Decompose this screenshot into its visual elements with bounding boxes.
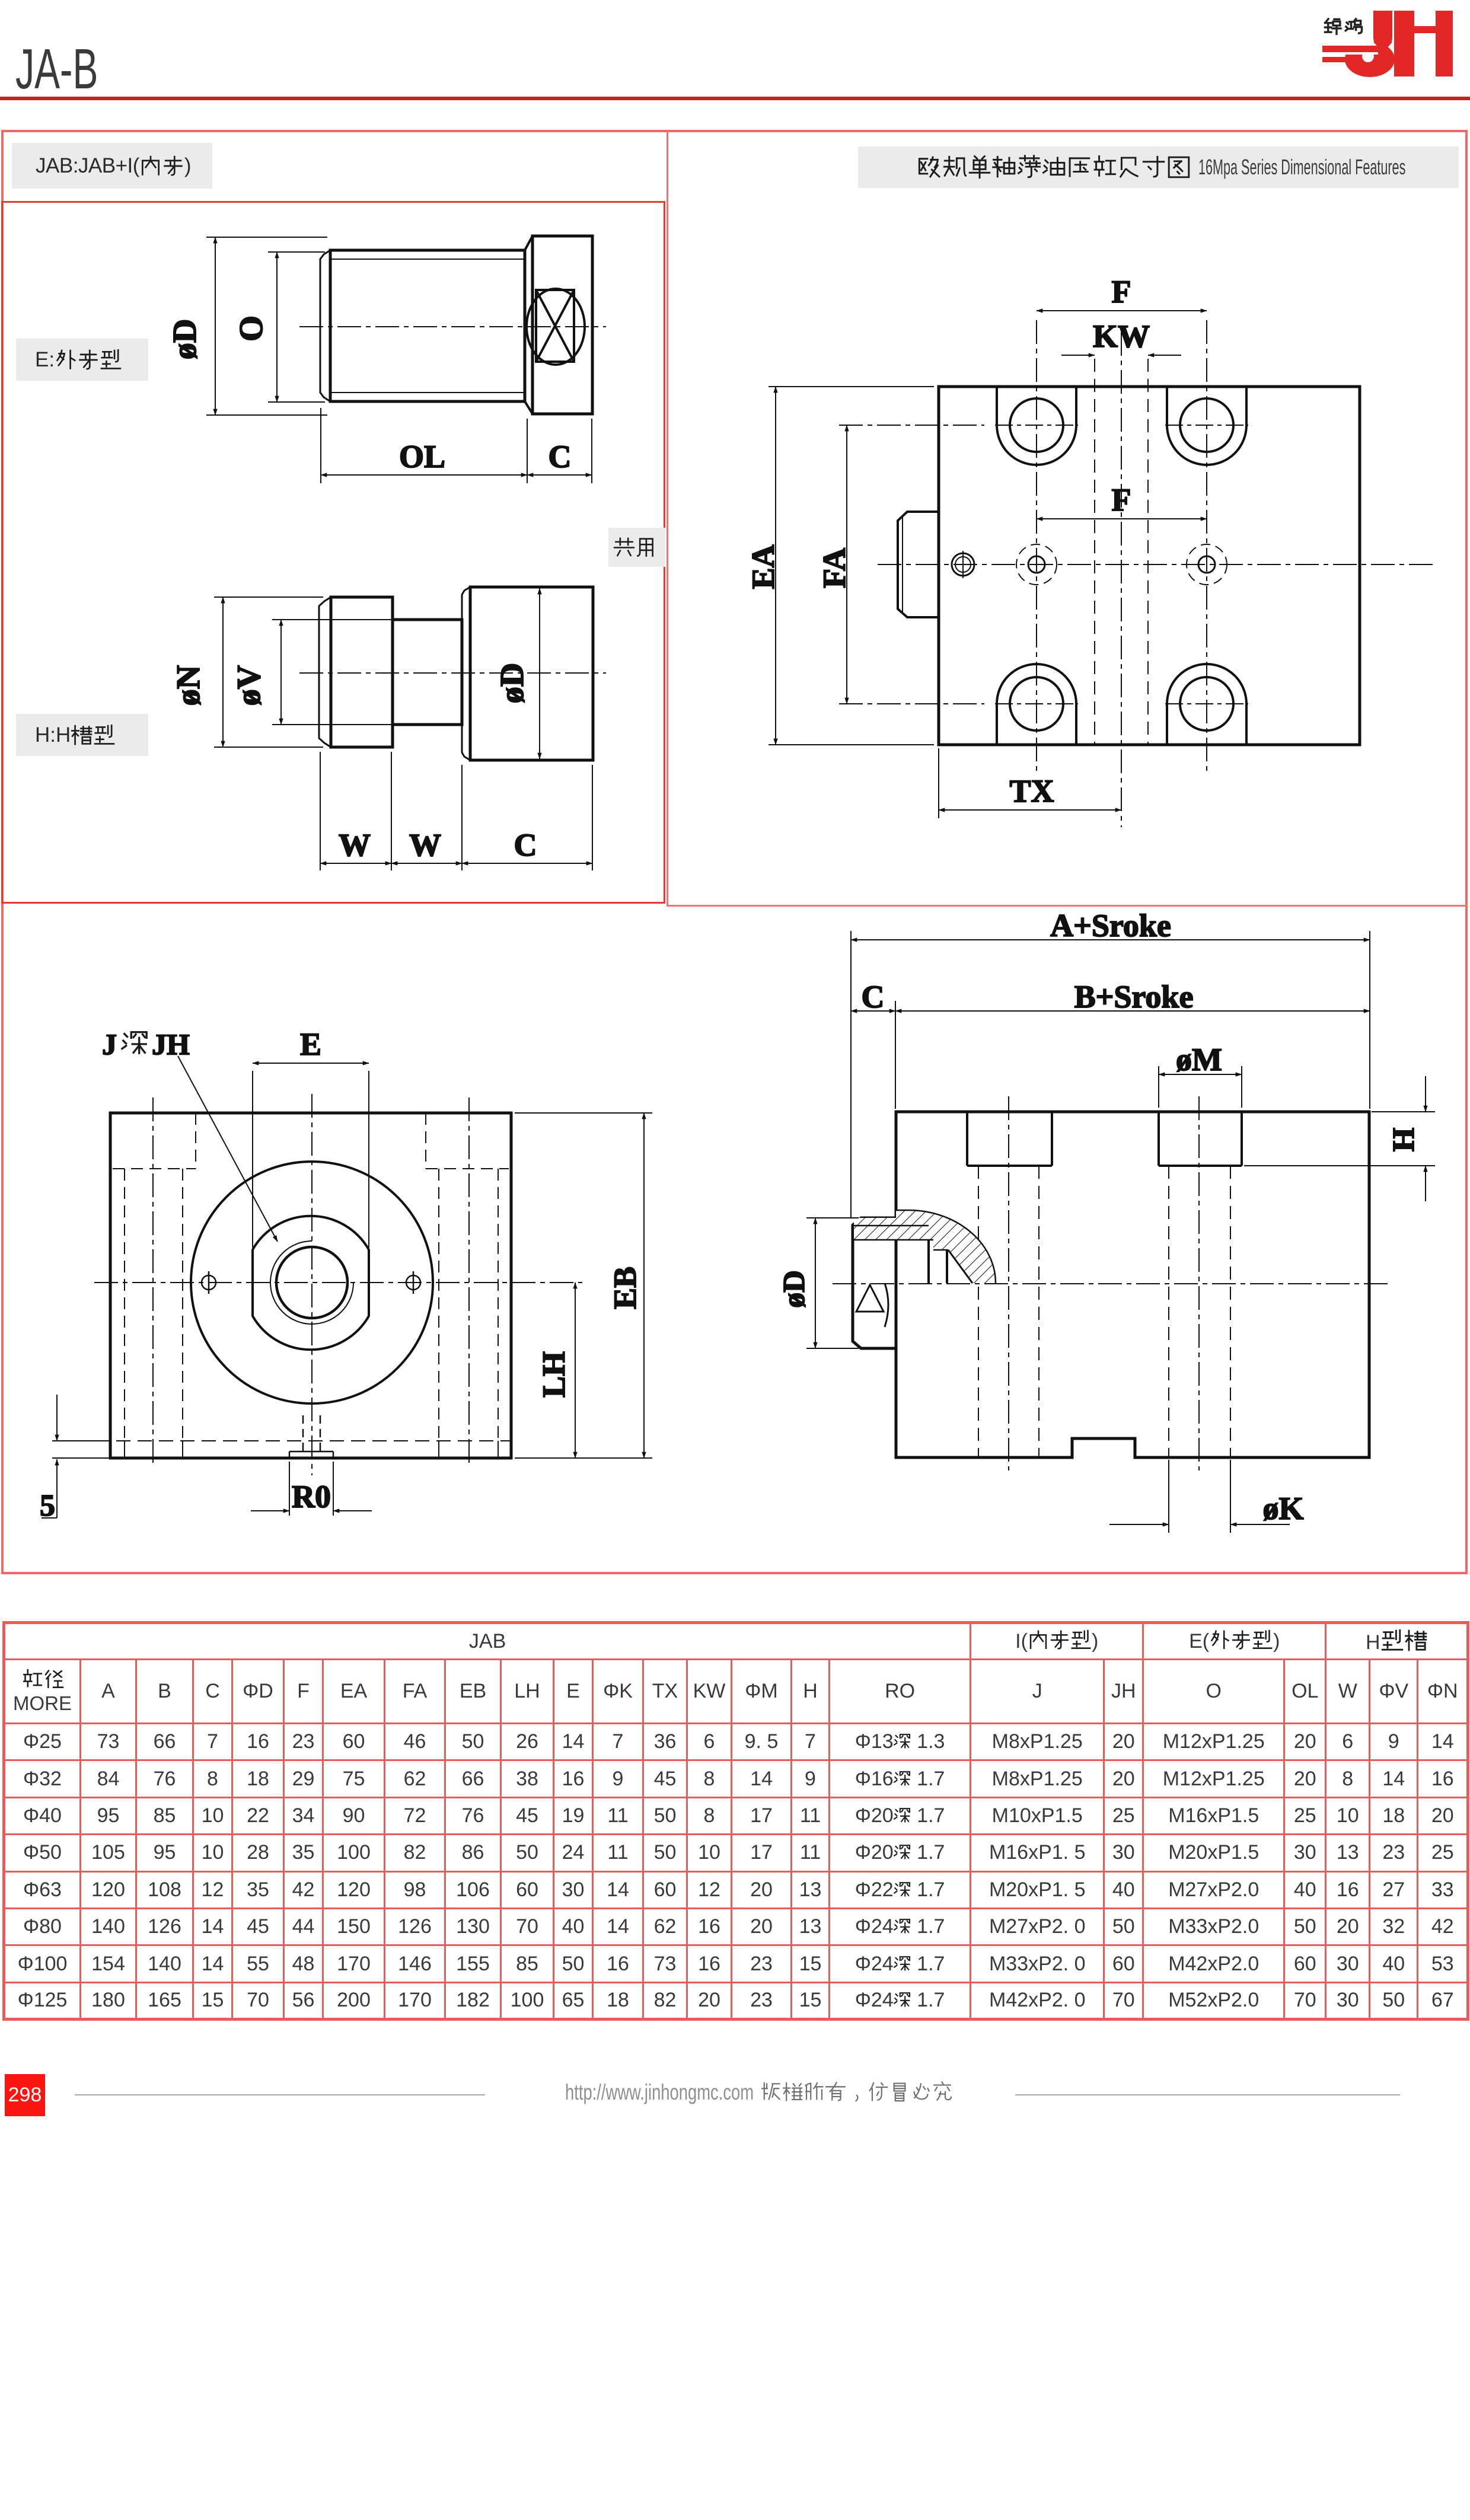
- svg-text:J: J: [102, 1028, 117, 1061]
- svg-text:øM: øM: [1176, 1042, 1222, 1077]
- svg-text:F: F: [1112, 274, 1131, 310]
- svg-text:FA: FA: [817, 548, 852, 588]
- svg-text:C: C: [862, 979, 885, 1015]
- svg-text:O: O: [233, 315, 270, 342]
- svg-text:5: 5: [40, 1489, 55, 1523]
- svg-text:KW: KW: [1093, 318, 1150, 354]
- svg-text:øK: øK: [1262, 1491, 1303, 1526]
- svg-text:EB: EB: [607, 1267, 643, 1309]
- svg-text:øD: øD: [494, 663, 531, 703]
- svg-text:TX: TX: [1009, 773, 1054, 809]
- svg-text:øD: øD: [777, 1270, 811, 1308]
- svg-text:OL: OL: [399, 439, 445, 474]
- svg-text:B+Sroke: B+Sroke: [1074, 979, 1194, 1015]
- svg-text:LH: LH: [536, 1351, 572, 1398]
- svg-text:øN: øN: [170, 665, 207, 706]
- svg-text:E: E: [300, 1026, 321, 1062]
- svg-text:øV: øV: [231, 665, 267, 706]
- svg-text:C: C: [514, 827, 537, 863]
- svg-text:F: F: [1112, 482, 1131, 518]
- svg-text:A+Sroke: A+Sroke: [1050, 908, 1171, 943]
- svg-text:C: C: [549, 439, 572, 474]
- svg-text:W: W: [339, 827, 371, 863]
- svg-text:øD: øD: [167, 319, 203, 359]
- svg-text:JH: JH: [152, 1028, 190, 1061]
- svg-text:H: H: [1387, 1128, 1421, 1151]
- svg-text:W: W: [409, 827, 441, 863]
- svg-text:EA: EA: [745, 544, 781, 589]
- svg-text:R0: R0: [292, 1479, 331, 1514]
